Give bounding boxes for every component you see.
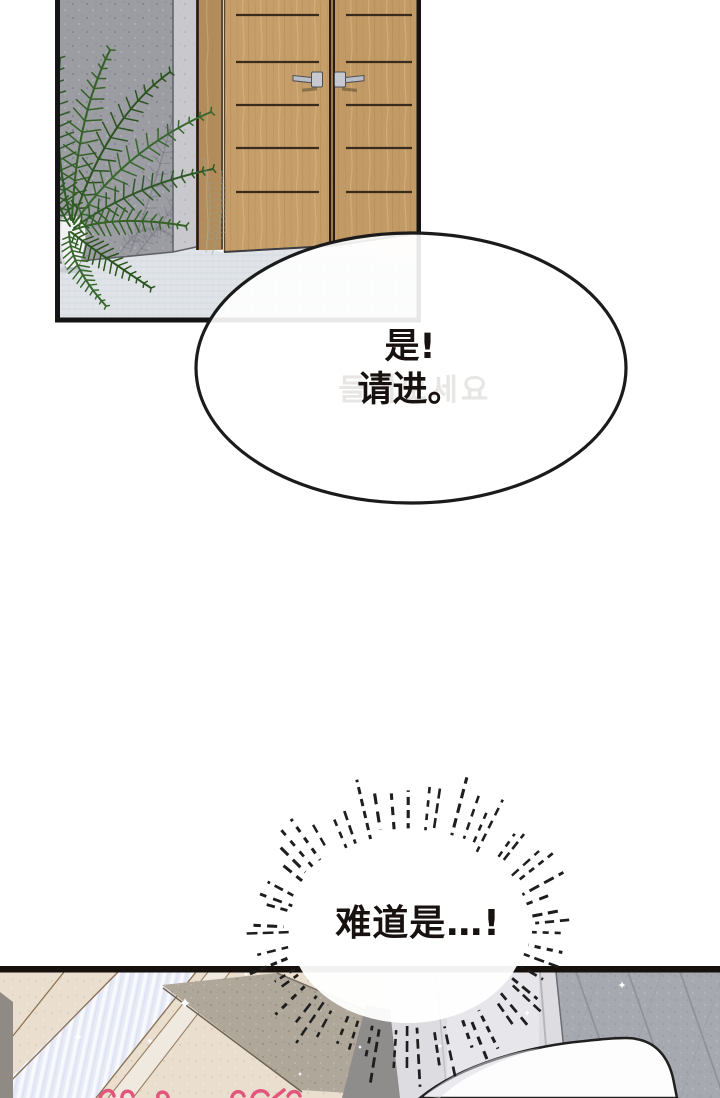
burst-bubble-text: 难道是…!	[268, 904, 568, 944]
speech-bubble-text-line1: 是!	[310, 328, 510, 367]
left-dark-edge	[0, 992, 13, 1098]
speech-bubble-text-line2: 请进。	[300, 371, 520, 410]
comic-page: 들어오세요 是! 请进。	[0, 0, 720, 1098]
double-door	[196, 0, 420, 252]
